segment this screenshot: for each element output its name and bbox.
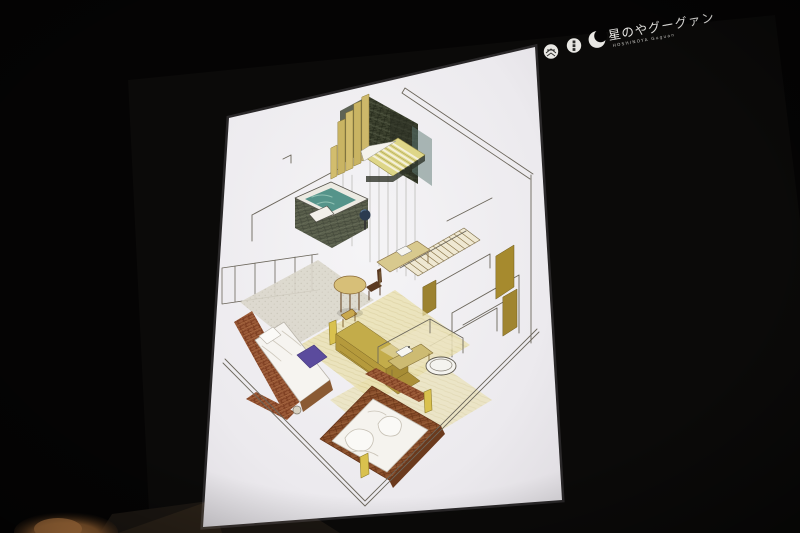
- auditorium-photo: 星のやグーグァン HOSHINOYA Guguan: [0, 0, 800, 533]
- photo-canvas: 星のやグーグァン HOSHINOYA Guguan: [0, 0, 800, 533]
- photo-vignette: [0, 0, 800, 533]
